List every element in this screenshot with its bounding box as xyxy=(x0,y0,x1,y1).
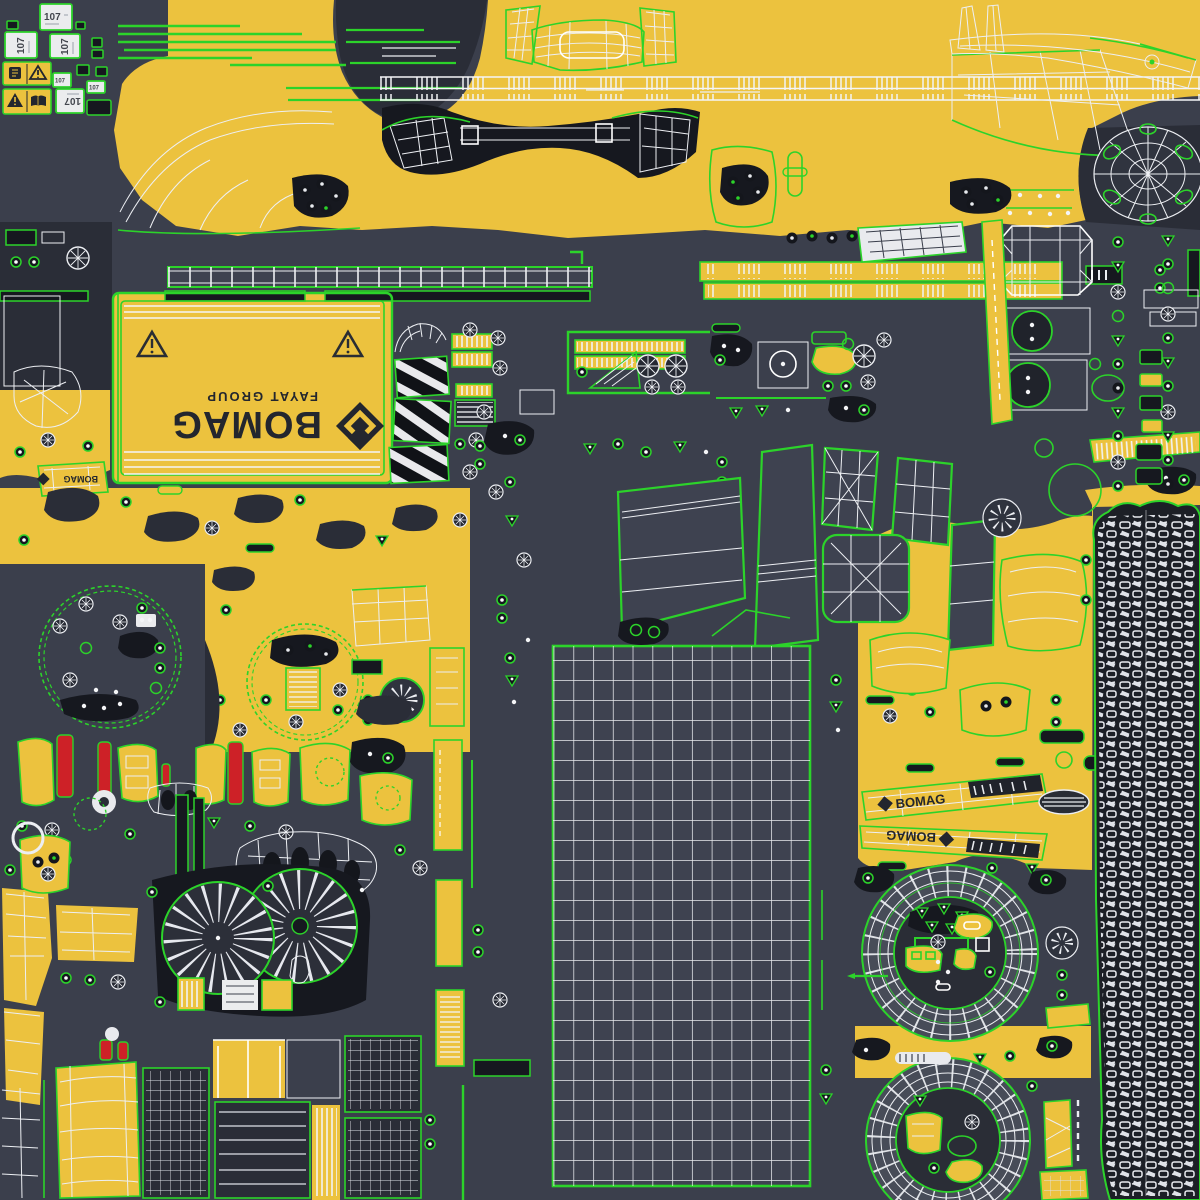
ladder-strip xyxy=(168,267,592,287)
fayat-group-subtitle: FAYAT GROUP xyxy=(205,389,318,404)
speaker-panel-a xyxy=(1000,308,1090,354)
sticker-107-d: 107 xyxy=(53,73,71,87)
open-book-icon xyxy=(31,96,46,107)
sticker-107-f: 107 xyxy=(56,89,84,113)
bolt-cluster-b xyxy=(950,178,1011,214)
drum-face-bottom xyxy=(866,1058,1030,1200)
bomag-small-wordmark: BOMAG xyxy=(64,474,99,484)
atlas-canvas: 107 107 107 107 107 107 xyxy=(0,0,1200,1200)
sticker-107-a-label: 107 xyxy=(44,12,61,23)
sticker-107-c-label: 107 xyxy=(60,38,71,55)
sticker-107-e: 107 xyxy=(87,81,105,93)
sticker-107-a: 107 xyxy=(40,4,72,30)
sticker-107-f-label: 107 xyxy=(64,95,81,106)
tire-tread-strip xyxy=(1081,501,1200,1200)
sticker-107-b-label: 107 xyxy=(16,37,27,54)
sticker-107-b: 107 xyxy=(5,32,37,58)
sticker-107-e-label: 107 xyxy=(89,86,100,92)
sticker-107-c: 107 xyxy=(50,34,80,58)
decal-sticker-sheet: 107 107 107 107 107 107 xyxy=(3,4,111,115)
center-grid-panel xyxy=(553,610,810,1186)
sticker-107-d-label: 107 xyxy=(55,79,66,85)
hood-edge-strips xyxy=(380,77,1200,100)
warning-decal-card-1 xyxy=(3,62,51,85)
corner-panels xyxy=(1027,1081,1088,1200)
bomag-wordmark: BOMAG xyxy=(171,403,322,445)
center-column-parts xyxy=(463,390,554,1200)
tank-face-circle xyxy=(39,586,181,728)
warning-decal-card-2 xyxy=(3,89,51,114)
uv-texture-atlas: 107 107 107 107 107 107 xyxy=(0,0,1200,1200)
gauge-panel xyxy=(568,332,710,394)
drum-face-top xyxy=(862,865,1038,1041)
instrument-cluster xyxy=(710,324,891,422)
side-strip-bottom-brand: BOMAG xyxy=(886,828,937,846)
manual-icon xyxy=(9,67,21,79)
